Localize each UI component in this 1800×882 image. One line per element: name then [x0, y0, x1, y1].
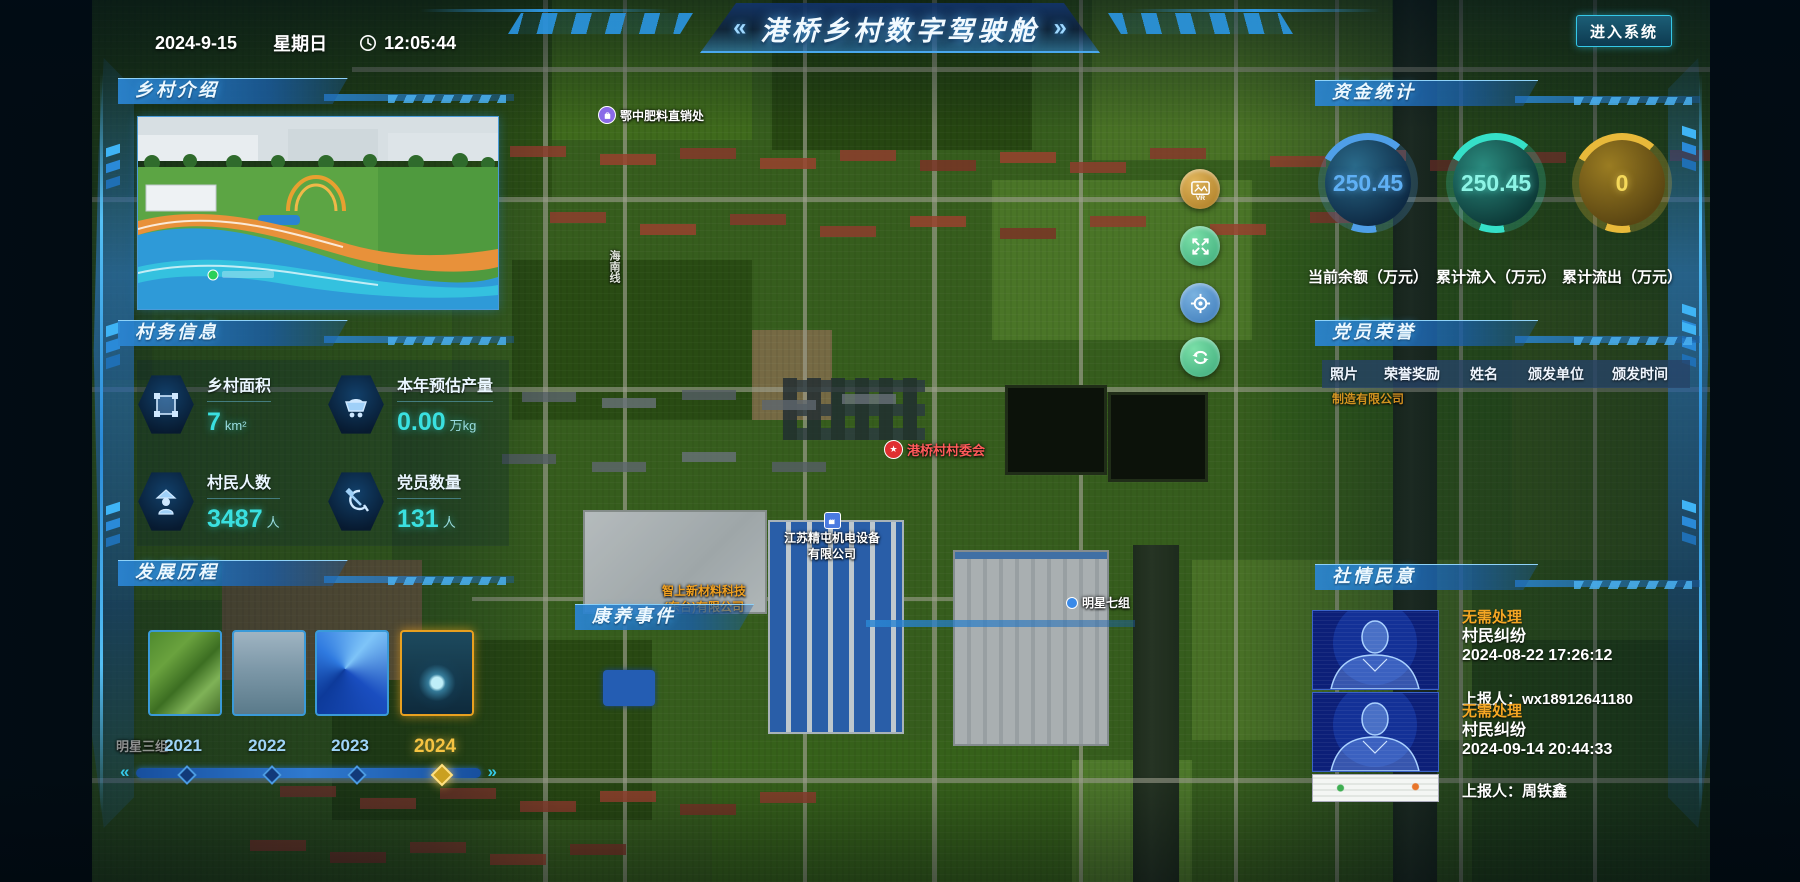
map-village-roofs: [510, 146, 566, 157]
villager-icon: [137, 471, 195, 533]
vr-panorama-button[interactable]: VR: [1180, 169, 1220, 209]
stat-label: 乡村面积: [207, 372, 271, 402]
panel-village-intro-header: 乡村介绍: [118, 78, 514, 108]
category-label: 村民纠纷: [1462, 627, 1612, 646]
column-photo: 照片: [1322, 364, 1384, 384]
slider-left-arrow[interactable]: «: [120, 762, 129, 782]
gauge-label-outflow: 累计流出（万元）: [1554, 266, 1690, 287]
banner-wing-right: [1130, 9, 1380, 12]
banner-stripes-right: [1108, 13, 1293, 34]
category-label: 村民纠纷: [1462, 721, 1612, 740]
poi-jiangsu-company[interactable]: 江苏精屯机电设备 有限公司: [776, 512, 888, 561]
history-year-2023[interactable]: 2023: [315, 736, 385, 756]
poi-label: 制造有限公司: [1332, 390, 1404, 407]
poi-company-partial: 制造有限公司: [1332, 390, 1404, 407]
panel-party-honors-header: 党员荣誉: [1315, 320, 1700, 350]
village-photo[interactable]: [137, 116, 499, 310]
column-issuer: 颁发单位: [1528, 364, 1612, 384]
stat-area: 乡村面积 7km²: [137, 360, 319, 449]
poi-fertilizer-store[interactable]: 鄂中肥料直销处: [598, 106, 704, 124]
dashboard: 鄂中肥料直销处 ★ 港桥村村委会 江苏精屯机电设备 有限公司 智上新材料科技 (…: [0, 0, 1800, 882]
map-pond: [1005, 385, 1107, 475]
datetime-bar: 2024-9-15 星期日 12:05:44: [155, 30, 456, 56]
sentiment-item-1-text[interactable]: 无需处理 村民纠纷 2024-08-22 17:26:12: [1462, 608, 1612, 665]
panel-village-affairs-header: 村务信息: [118, 320, 514, 350]
gauge-balance: 250.45: [1318, 133, 1418, 233]
poi-label: 智上新材料科技: [662, 584, 746, 598]
area-icon: [137, 374, 195, 436]
fullscreen-button[interactable]: [1180, 226, 1220, 266]
gauge-inflow: 250.45: [1446, 133, 1546, 233]
gauge-value: 0: [1579, 140, 1665, 226]
panel-title: 乡村介绍: [118, 78, 514, 103]
history-year-2024[interactable]: 2024: [400, 736, 470, 758]
status-badge: 无需处理: [1462, 702, 1612, 721]
banner-wing-left: [420, 9, 670, 12]
history-thumb-2021[interactable]: [148, 630, 222, 716]
gauge-value: 250.45: [1325, 140, 1411, 226]
poi-label: 鄂中肥料直销处: [620, 107, 704, 124]
crosshair-icon: [1189, 292, 1212, 315]
poi-village-committee[interactable]: ★ 港桥村村委会: [884, 440, 985, 459]
map-villas: [783, 378, 925, 440]
sentiment-item-2-reporter: 上报人：周铁鑫: [1462, 780, 1567, 801]
gauge-value: 250.45: [1453, 140, 1539, 226]
timestamp: 2024-08-22 17:26:12: [1462, 646, 1612, 665]
gauge-label-balance: 当前余额（万元）: [1300, 266, 1436, 287]
panel-title: 村务信息: [118, 320, 514, 345]
poi-label-line2: 有限公司: [808, 547, 856, 561]
sentiment-item-3-image[interactable]: [1312, 774, 1439, 802]
map-canal: [1133, 545, 1179, 882]
poi-road-label: 海南线: [606, 250, 622, 283]
cart-icon: [327, 374, 385, 436]
banner-stripes-left: [508, 13, 693, 34]
stat-output: 本年预估产量 0.00万kg: [327, 360, 509, 449]
panel-title: 康养事件: [575, 604, 1135, 629]
map-warehouse-white: [955, 552, 1107, 744]
honors-table-header: 照片 荣誉奖励 姓名 颁发单位 颁发时间: [1322, 360, 1690, 388]
map-road: [543, 0, 548, 882]
stat-unit: 万kg: [450, 418, 477, 433]
stat-label: 党员数量: [397, 469, 461, 499]
column-date: 颁发时间: [1612, 364, 1698, 384]
date-label: 2024-9-15: [155, 33, 237, 54]
map-road: [1234, 0, 1238, 882]
enter-system-button[interactable]: 进入系统: [1576, 15, 1672, 47]
locate-button[interactable]: [1180, 283, 1220, 323]
panel-title: 党员荣誉: [1315, 320, 1700, 345]
panel-development-history-header: 发展历程: [118, 560, 514, 590]
panel-health-events-header: 康养事件: [575, 604, 1135, 634]
panel-title: 发展历程: [118, 560, 514, 585]
stat-label: 本年预估产量: [397, 372, 493, 402]
stat-label: 村民人数: [207, 469, 280, 499]
poi-label: 海南线: [606, 250, 622, 283]
map-pool: [603, 670, 655, 706]
poi-label: 江苏精屯机电设备: [784, 531, 880, 545]
stat-unit: 人: [267, 515, 280, 530]
time-label: 12:05:44: [384, 33, 456, 54]
timestamp: 2024-09-14 20:44:33: [1462, 740, 1612, 759]
panel-fund-stats-header: 资金统计: [1315, 80, 1700, 110]
map-road: [623, 0, 627, 882]
gauge-outflow: 0: [1572, 133, 1672, 233]
slider-right-arrow[interactable]: »: [488, 762, 497, 782]
clock-icon: [359, 34, 377, 52]
map-road: [352, 67, 1710, 72]
stat-value: 7: [207, 408, 221, 436]
svg-text:VR: VR: [1195, 195, 1204, 201]
panel-title: 社情民意: [1315, 564, 1700, 589]
title-right-arrows: »: [1054, 14, 1067, 42]
panel-public-sentiment-header: 社情民意: [1315, 564, 1700, 594]
history-year-2022[interactable]: 2022: [232, 736, 302, 756]
vr-panorama-icon: VR: [1189, 178, 1212, 201]
sentiment-item-2-text[interactable]: 无需处理 村民纠纷 2024-09-14 20:44:33: [1462, 702, 1612, 759]
switch-layer-button[interactable]: [1180, 337, 1220, 377]
stat-value: 131: [397, 505, 439, 533]
column-award: 荣誉奖励: [1384, 364, 1470, 384]
expand-icon: [1189, 235, 1212, 258]
poi-label: 港桥村村委会: [907, 440, 985, 459]
village-stats-grid: 乡村面积 7km² 本年预估产量 0.00万kg 村民人数 3487人: [137, 360, 509, 546]
history-year-2021[interactable]: 2021: [148, 736, 218, 756]
party-icon: [327, 471, 385, 533]
sentiment-item-2-image[interactable]: [1312, 692, 1439, 772]
history-thumb-2023[interactable]: [315, 630, 389, 716]
stat-unit: km²: [225, 418, 247, 433]
map-road: [803, 0, 807, 882]
page-title: 港桥乡村数字驾驶舱: [761, 9, 1040, 48]
gauge-label-inflow: 累计流入（万元）: [1428, 266, 1564, 287]
history-thumb-2024[interactable]: [400, 630, 474, 716]
history-thumb-2022[interactable]: [232, 630, 306, 716]
sentiment-item-1-image[interactable]: [1312, 610, 1439, 690]
stat-party-members: 党员数量 131人: [327, 457, 509, 546]
stat-value: 0.00: [397, 408, 446, 436]
building-pin-icon: [824, 512, 841, 529]
header-banner: « 港桥乡村数字驾驶舱 »: [700, 3, 1100, 53]
stat-unit: 人: [443, 515, 456, 530]
history-timeline-slider[interactable]: « »: [122, 766, 495, 780]
swap-arrows-icon: [1189, 346, 1212, 369]
column-name: 姓名: [1470, 364, 1528, 384]
map-village-roofs-gray: [522, 392, 576, 402]
panel-title: 资金统计: [1315, 80, 1700, 105]
stat-villagers: 村民人数 3487人: [137, 457, 319, 546]
village-photo-art: [138, 117, 498, 309]
weekday-label: 星期日: [273, 30, 327, 56]
status-badge: 无需处理: [1462, 608, 1612, 627]
map-pond: [1108, 392, 1208, 482]
shop-pin-icon: [598, 106, 616, 124]
star-pin-icon: ★: [884, 440, 903, 459]
title-left-arrows: «: [733, 14, 746, 42]
stat-value: 3487: [207, 505, 263, 533]
